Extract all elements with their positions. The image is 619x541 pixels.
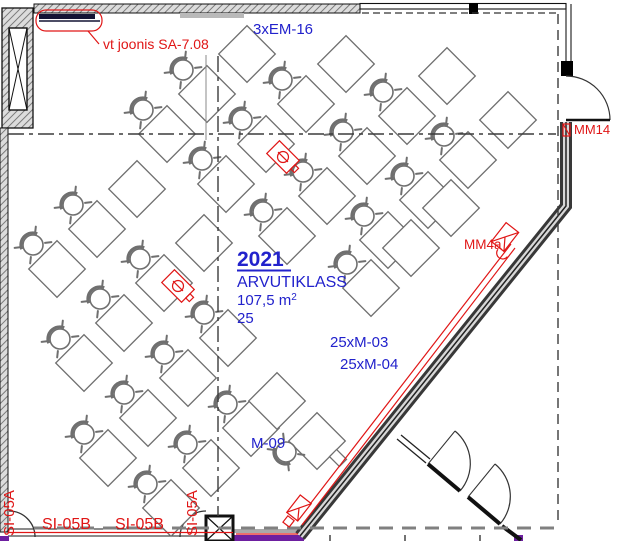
- cloud-leader: [88, 31, 99, 44]
- desk: [480, 92, 537, 149]
- label-si05b-2: SI-05B: [115, 516, 164, 533]
- label-m03: 25xM-03: [330, 334, 388, 351]
- lintel-element: [39, 14, 95, 19]
- desk: [109, 161, 166, 218]
- top-wall: [34, 4, 360, 13]
- room-seats: 25: [237, 310, 254, 327]
- label-si05a-left: SI-05A: [1, 490, 18, 536]
- label-mm4a: MM4a: [464, 237, 502, 252]
- label-m04: 25xM-04: [340, 356, 398, 373]
- top-wall-right: [360, 4, 566, 10]
- label-sa708: vt joonis SA-7.08: [103, 36, 209, 52]
- floor-plan-page: 3xEM-16 2021 ARVUTIKLASS 107,5 m2 25 25x…: [0, 0, 619, 541]
- shaft: [2, 8, 33, 128]
- label-m09: M-09: [251, 435, 285, 452]
- wall-board-strip: [180, 13, 244, 18]
- label-si05b-1: SI-05B: [42, 516, 91, 533]
- top-wall-tick: [469, 3, 478, 14]
- bottom-gray-strip: [234, 529, 300, 533]
- label-em16: 3xEM-16: [253, 21, 313, 38]
- desk: [419, 48, 476, 105]
- bottom-purple-wall: [234, 535, 304, 541]
- door-hinge-block: [561, 61, 573, 76]
- left-wall: [0, 128, 8, 532]
- room-number: 2021: [237, 248, 284, 271]
- doors: [397, 76, 610, 540]
- label-si05a-right: SI-05A: [184, 490, 201, 536]
- room-name: ARVUTIKLASS: [237, 274, 347, 291]
- door-double-diagonal: [397, 431, 521, 540]
- desk: [318, 36, 375, 93]
- label-mm14: MM14: [574, 122, 610, 137]
- room-area: 107,5 m2: [237, 292, 297, 309]
- desk: [176, 215, 233, 272]
- door-top-right: [566, 76, 610, 120]
- floor-plan-drawing: 3xEM-16 2021 ARVUTIKLASS 107,5 m2 25 25x…: [0, 0, 619, 541]
